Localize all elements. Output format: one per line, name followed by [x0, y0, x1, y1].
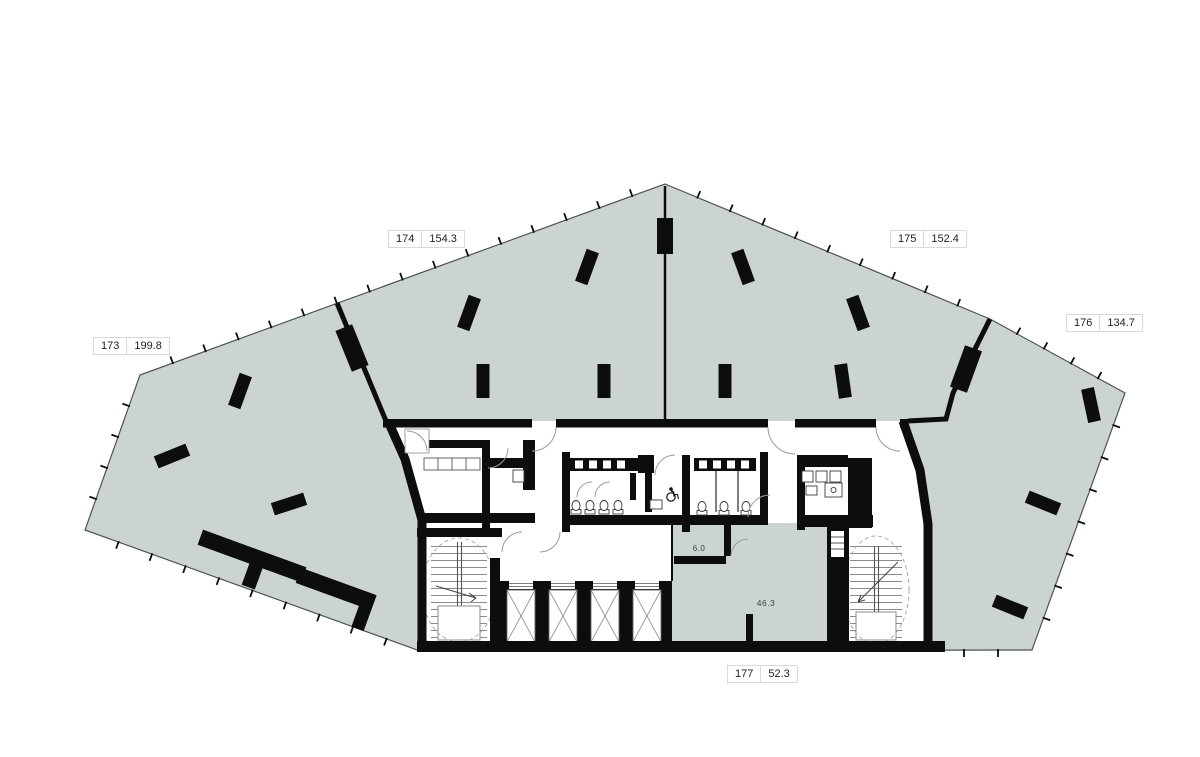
- small-room-area-label: 6.0: [693, 544, 706, 553]
- unit-id: 175: [891, 231, 923, 247]
- floor-plan-page: 6.0 46.3 173 199.8 174 154.3 175 152.4 1…: [0, 0, 1200, 757]
- open-area-label: 46.3: [757, 598, 776, 608]
- unit-area: 52.3: [760, 666, 796, 682]
- unit-id: 177: [728, 666, 760, 682]
- elevator-shaft: [591, 581, 619, 642]
- unit-area: 154.3: [421, 231, 464, 247]
- floor-plan-canvas: 6.0 46.3: [0, 0, 1200, 757]
- unit-label-174[interactable]: 174 154.3: [388, 230, 465, 248]
- unit-label-177[interactable]: 177 52.3: [727, 665, 798, 683]
- unit-area: 152.4: [923, 231, 966, 247]
- unit-label-176[interactable]: 176 134.7: [1066, 314, 1143, 332]
- elevator-shaft: [549, 581, 577, 642]
- unit-label-175[interactable]: 175 152.4: [890, 230, 967, 248]
- elevator-bank: [498, 581, 672, 650]
- unit-id: 174: [389, 231, 421, 247]
- right-stair: [843, 536, 909, 644]
- unit-id: 176: [1067, 315, 1099, 331]
- unit-area: 134.7: [1099, 315, 1142, 331]
- elevator-shaft: [633, 581, 661, 642]
- unit-id: 173: [94, 338, 126, 354]
- left-stair: [422, 538, 496, 642]
- unit-area: 199.8: [126, 338, 169, 354]
- elevator-shaft: [507, 581, 535, 642]
- unit-label-173[interactable]: 173 199.8: [93, 337, 170, 355]
